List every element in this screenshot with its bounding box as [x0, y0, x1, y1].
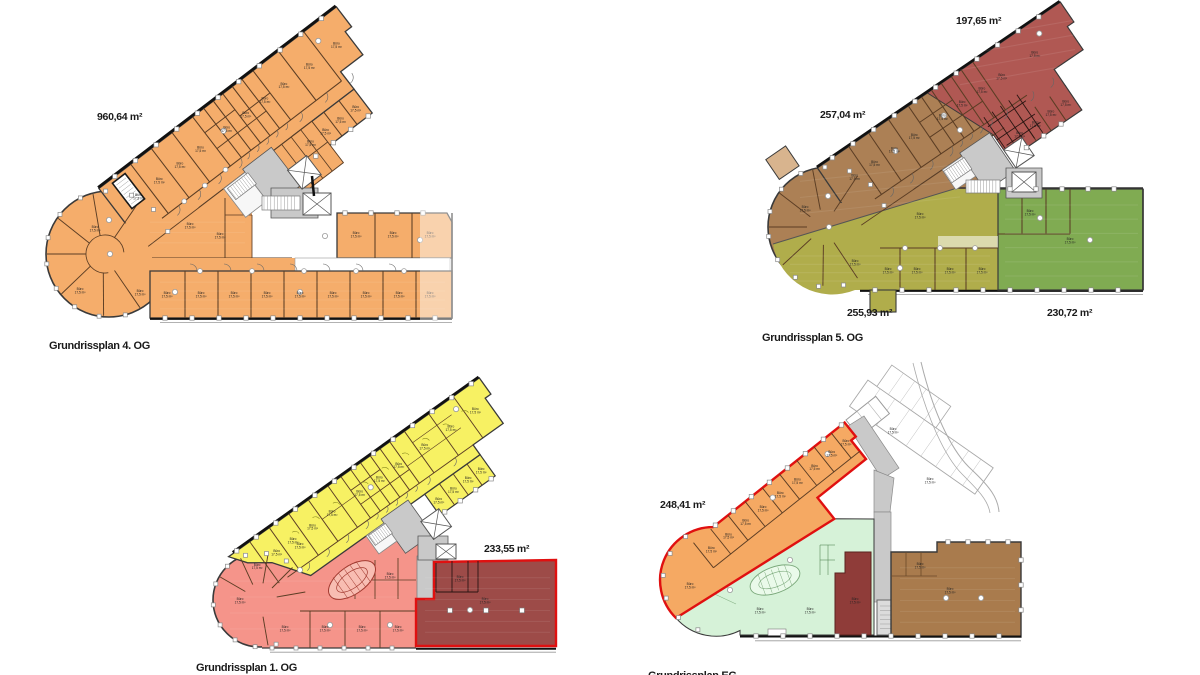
svg-text:17,5 m²: 17,5 m²: [1060, 103, 1071, 107]
svg-text:17,5 m²: 17,5 m²: [826, 454, 837, 458]
svg-text:Grundrissplan 5. OG: Grundrissplan 5. OG: [762, 332, 863, 344]
svg-text:17,5 m²: 17,5 m²: [351, 234, 362, 238]
svg-text:17,5 m²: 17,5 m²: [945, 590, 956, 594]
svg-text:17,5 m²: 17,5 m²: [174, 165, 185, 169]
svg-text:17,5 m²: 17,5 m²: [470, 411, 481, 415]
svg-text:17,5 m²: 17,5 m²: [1045, 113, 1056, 117]
svg-text:17,5 m²: 17,5 m²: [889, 150, 900, 154]
svg-text:17,5 m²: 17,5 m²: [385, 575, 396, 579]
svg-text:17,5 m²: 17,5 m²: [455, 578, 466, 582]
svg-text:17,5 m²: 17,5 m²: [706, 549, 717, 553]
svg-text:17,5 m²: 17,5 m²: [685, 585, 696, 589]
svg-text:17,5 m²: 17,5 m²: [252, 566, 263, 570]
svg-text:17,5 m²: 17,5 m²: [809, 467, 820, 471]
svg-text:17,5 m²: 17,5 m²: [162, 294, 173, 298]
svg-text:17,5 m²: 17,5 m²: [805, 610, 816, 614]
svg-text:Grundrissplan EG: Grundrissplan EG: [648, 670, 737, 675]
svg-text:17,5 m²: 17,5 m²: [271, 552, 282, 556]
svg-text:17,5 m²: 17,5 m²: [278, 85, 289, 89]
svg-text:17,5 m²: 17,5 m²: [235, 600, 246, 604]
svg-text:17,5 m²: 17,5 m²: [850, 600, 861, 604]
svg-text:17,5 m²: 17,5 m²: [1065, 240, 1076, 244]
svg-text:17,5 m²: 17,5 m²: [723, 536, 734, 540]
svg-text:17,5 m²: 17,5 m²: [976, 90, 987, 94]
svg-text:17,5 m²: 17,5 m²: [195, 149, 206, 153]
svg-text:257,04 m²: 257,04 m²: [820, 109, 866, 121]
svg-text:960,64 m²: 960,64 m²: [97, 111, 143, 123]
svg-text:17,5 m²: 17,5 m²: [1030, 124, 1041, 128]
svg-text:17,5 m²: 17,5 m²: [480, 600, 491, 604]
svg-text:17,5 m²: 17,5 m²: [350, 108, 361, 112]
svg-text:17,5 m²: 17,5 m²: [792, 481, 803, 485]
svg-text:17,5 m²: 17,5 m²: [1014, 135, 1025, 139]
svg-text:17,5 m²: 17,5 m²: [915, 215, 926, 219]
svg-text:17,5 m²: 17,5 m²: [394, 294, 405, 298]
svg-text:17,5 m²: 17,5 m²: [229, 294, 240, 298]
svg-text:17,5 m²: 17,5 m²: [393, 465, 404, 469]
svg-text:17,5 m²: 17,5 m²: [476, 470, 487, 474]
svg-text:248,41 m²: 248,41 m²: [660, 499, 706, 511]
svg-text:17,5 m²: 17,5 m²: [888, 430, 899, 434]
svg-text:17,5 m²: 17,5 m²: [909, 136, 920, 140]
svg-text:17,5 m²: 17,5 m²: [957, 104, 968, 108]
svg-text:17,5 m²: 17,5 m²: [840, 442, 851, 446]
svg-text:17,5 m²: 17,5 m²: [354, 493, 365, 497]
svg-text:197,65 m²: 197,65 m²: [956, 15, 1002, 27]
svg-text:17,5 m²: 17,5 m²: [1025, 212, 1036, 216]
svg-text:17,5 m²: 17,5 m²: [328, 294, 339, 298]
svg-text:17,5 m²: 17,5 m²: [154, 181, 165, 185]
svg-text:17,5 m²: 17,5 m²: [262, 294, 273, 298]
svg-text:17,5 m²: 17,5 m²: [304, 66, 315, 70]
svg-text:17,5 m²: 17,5 m²: [335, 120, 346, 124]
svg-text:17,5 m²: 17,5 m²: [295, 545, 306, 549]
svg-text:17,5 m²: 17,5 m²: [419, 447, 430, 451]
svg-text:17,5 m²: 17,5 m²: [221, 129, 232, 133]
svg-text:17,5 m²: 17,5 m²: [388, 234, 399, 238]
svg-text:17,5 m²: 17,5 m²: [937, 117, 948, 121]
svg-text:17,5 m²: 17,5 m²: [331, 45, 342, 49]
svg-text:17,5 m²: 17,5 m²: [755, 610, 766, 614]
svg-text:17,5 m²: 17,5 m²: [925, 480, 936, 484]
svg-text:17,5 m²: 17,5 m²: [305, 143, 316, 147]
svg-text:230,72 m²: 230,72 m²: [1047, 307, 1093, 319]
svg-text:233,55 m²: 233,55 m²: [484, 543, 530, 555]
svg-text:17,5 m²: 17,5 m²: [758, 508, 769, 512]
svg-text:17,5 m²: 17,5 m²: [445, 428, 456, 432]
svg-text:Grundrissplan 1. OG: Grundrissplan 1. OG: [196, 662, 297, 674]
svg-text:17,5 m²: 17,5 m²: [240, 114, 251, 118]
svg-text:17,5 m²: 17,5 m²: [90, 228, 101, 232]
svg-text:17,5 m²: 17,5 m²: [327, 513, 338, 517]
svg-text:17,5 m²: 17,5 m²: [374, 479, 385, 483]
svg-text:17,5 m²: 17,5 m²: [320, 131, 331, 135]
svg-text:17,5 m²: 17,5 m²: [849, 177, 860, 181]
svg-text:Grundrissplan 4. OG: Grundrissplan 4. OG: [49, 340, 150, 352]
svg-text:17,5 m²: 17,5 m²: [463, 480, 474, 484]
svg-text:17,5 m²: 17,5 m²: [295, 294, 306, 298]
svg-text:17,5 m²: 17,5 m²: [185, 225, 196, 229]
svg-text:17,5 m²: 17,5 m²: [75, 290, 86, 294]
svg-text:17,5 m²: 17,5 m²: [307, 527, 318, 531]
svg-text:17,5 m²: 17,5 m²: [361, 294, 372, 298]
svg-text:17,5 m²: 17,5 m²: [869, 163, 880, 167]
svg-text:17,5 m²: 17,5 m²: [259, 100, 270, 104]
svg-text:17,5 m²: 17,5 m²: [775, 495, 786, 499]
svg-text:17,5 m²: 17,5 m²: [196, 294, 207, 298]
svg-text:17,5 m²: 17,5 m²: [448, 490, 459, 494]
svg-text:17,5 m²: 17,5 m²: [800, 208, 811, 212]
svg-text:255,93 m²: 255,93 m²: [847, 307, 893, 319]
svg-text:17,5 m²: 17,5 m²: [433, 501, 444, 505]
svg-text:17,5 m²: 17,5 m²: [740, 522, 751, 526]
svg-text:17,5 m²: 17,5 m²: [215, 235, 226, 239]
svg-text:17,5 m²: 17,5 m²: [133, 196, 144, 200]
svg-text:17,5 m²: 17,5 m²: [135, 292, 146, 296]
